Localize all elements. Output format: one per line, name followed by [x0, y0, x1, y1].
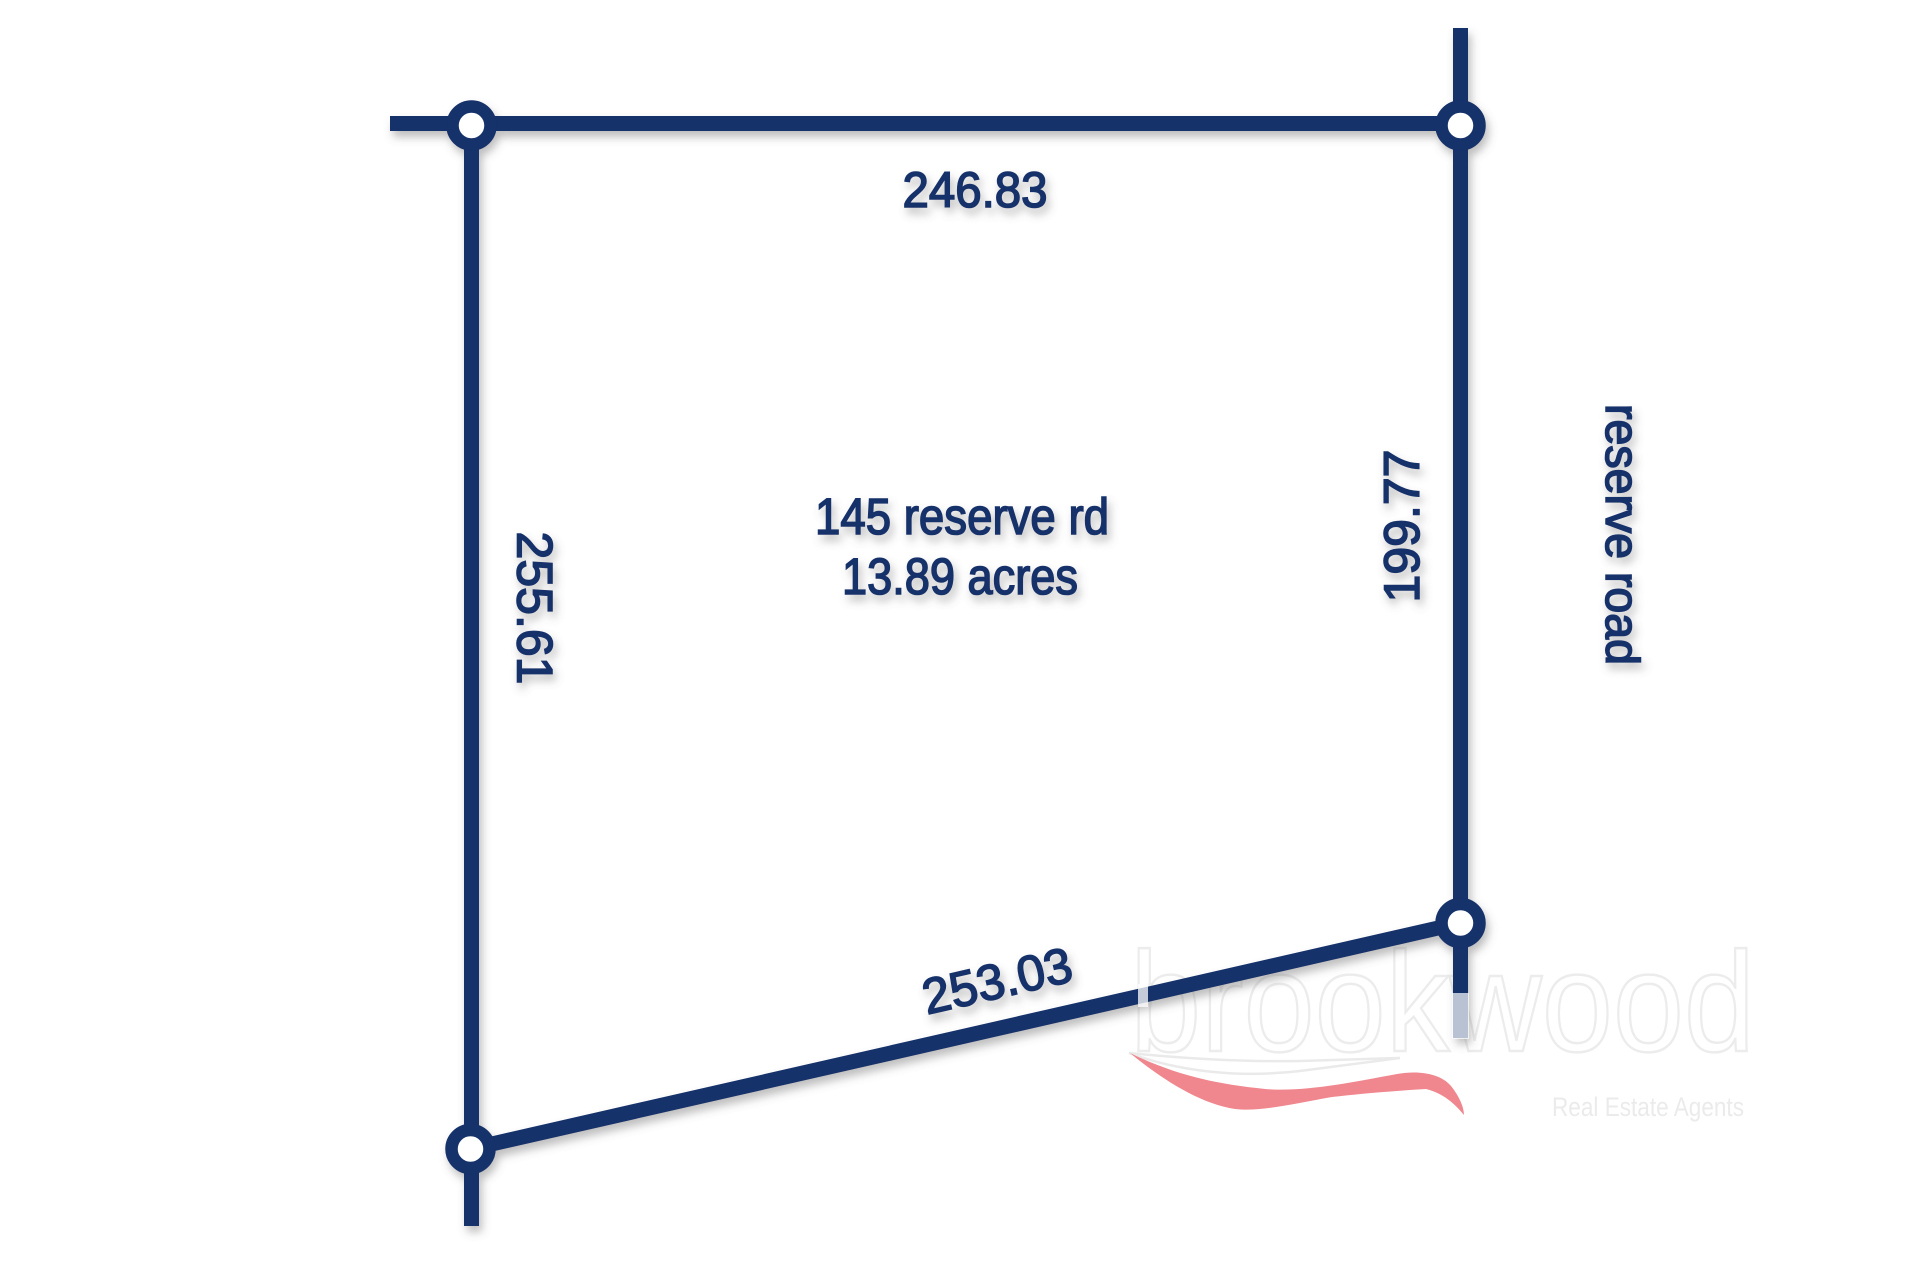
svg-text:246.83: 246.83 [903, 162, 1048, 218]
svg-text:199.77: 199.77 [1374, 450, 1430, 603]
svg-text:255.61: 255.61 [507, 532, 563, 685]
svg-text:13.89 acres: 13.89 acres [842, 548, 1078, 605]
svg-text:reserve road: reserve road [1596, 404, 1649, 665]
svg-text:Real Estate Agents: Real Estate Agents [1552, 1092, 1744, 1122]
svg-text:brookwood: brookwood [1130, 923, 1755, 1082]
svg-text:145 reserve rd: 145 reserve rd [815, 488, 1109, 545]
